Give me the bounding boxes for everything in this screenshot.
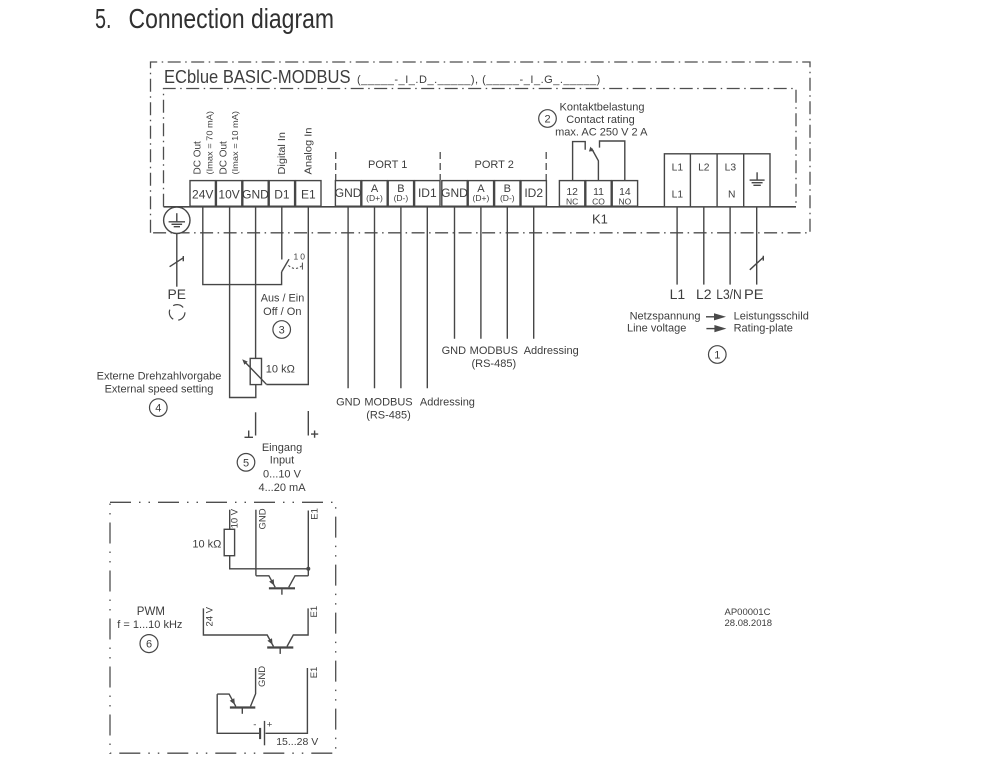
svg-text:10V: 10V — [218, 187, 239, 201]
svg-text:GND: GND — [257, 666, 268, 687]
svg-text:Netzspannung: Netzspannung — [630, 310, 701, 322]
svg-text:(D+): (D+) — [473, 193, 490, 203]
svg-text:10 kΩ: 10 kΩ — [266, 364, 295, 376]
svg-text:(_____-_I_.D_._____), (_____-_: (_____-_I_.D_._____), (_____-_I_.G_.____… — [357, 74, 601, 86]
svg-text:GND: GND — [442, 345, 467, 357]
svg-text:Input: Input — [270, 455, 294, 467]
svg-text:Addressing: Addressing — [420, 397, 475, 409]
svg-text:-: - — [253, 720, 256, 731]
svg-text:ID2: ID2 — [524, 186, 543, 200]
svg-text:L3/N: L3/N — [716, 286, 742, 302]
svg-text:GND: GND — [242, 187, 269, 201]
svg-text:Eingang: Eingang — [262, 442, 302, 454]
svg-text:L1: L1 — [672, 162, 684, 173]
svg-text:4: 4 — [155, 403, 161, 415]
svg-text:Leistungsschild: Leistungsschild — [734, 310, 809, 322]
svg-text:(D+): (D+) — [366, 193, 383, 203]
svg-text:PORT 1: PORT 1 — [368, 159, 407, 171]
svg-text:2: 2 — [544, 114, 550, 126]
svg-text:L1: L1 — [672, 190, 684, 201]
svg-text:Connection diagram: Connection diagram — [129, 3, 335, 34]
svg-text:AP00001C: AP00001C — [725, 607, 771, 618]
svg-text:MODBUS: MODBUS — [364, 397, 412, 409]
svg-text:4...20 mA: 4...20 mA — [258, 482, 306, 494]
svg-text:5: 5 — [243, 457, 249, 469]
svg-text:L3: L3 — [725, 162, 737, 173]
svg-text:PWM: PWM — [137, 606, 165, 618]
svg-text:K1: K1 — [592, 212, 608, 227]
svg-text:DC Out: DC Out — [193, 141, 204, 175]
svg-text:Off / On: Off / On — [263, 306, 301, 318]
svg-text:PE: PE — [744, 286, 764, 302]
svg-text:PE: PE — [168, 286, 187, 302]
svg-text:ID1: ID1 — [418, 186, 437, 200]
svg-text:GND: GND — [441, 186, 468, 200]
svg-text:Line voltage: Line voltage — [627, 323, 686, 335]
svg-text:Digital In: Digital In — [277, 132, 288, 175]
svg-text:1: 1 — [294, 252, 299, 262]
svg-text:GND: GND — [335, 186, 362, 200]
svg-text:External speed setting: External speed setting — [105, 383, 214, 395]
svg-text:GND: GND — [257, 508, 268, 529]
svg-text:Addressing: Addressing — [524, 345, 579, 357]
svg-text:0...10 V: 0...10 V — [263, 468, 302, 480]
svg-text:ECblue BASIC-MODBUS: ECblue BASIC-MODBUS — [164, 66, 351, 87]
svg-text:1: 1 — [714, 350, 720, 362]
svg-text:28.08.2018: 28.08.2018 — [725, 618, 773, 629]
svg-text:5.: 5. — [95, 3, 112, 34]
svg-text:E1: E1 — [309, 606, 320, 618]
svg-text:CO: CO — [592, 196, 605, 206]
svg-text:DC Out: DC Out — [218, 141, 229, 175]
svg-text:Contact rating: Contact rating — [566, 114, 634, 126]
svg-text:(RS-485): (RS-485) — [471, 358, 516, 370]
svg-text:L2: L2 — [698, 162, 710, 173]
svg-text:(D-): (D-) — [394, 193, 409, 203]
svg-text:24 V: 24 V — [205, 606, 216, 626]
svg-text:GND: GND — [336, 397, 361, 409]
svg-text:N: N — [728, 190, 735, 201]
svg-text:E1: E1 — [309, 508, 320, 520]
svg-text:Kontaktbelastung: Kontaktbelastung — [559, 102, 644, 114]
svg-text:(Imax = 10 mA): (Imax = 10 mA) — [230, 111, 240, 175]
svg-text:NO: NO — [619, 196, 632, 206]
svg-text:15...28 V: 15...28 V — [276, 736, 318, 748]
svg-text:max. AC 250 V 2 A: max. AC 250 V 2 A — [555, 127, 648, 139]
svg-text:MODBUS: MODBUS — [470, 345, 518, 357]
svg-text:L2: L2 — [696, 286, 712, 302]
svg-text:NC: NC — [566, 196, 578, 206]
svg-text:3: 3 — [279, 325, 285, 337]
svg-text:Aus / Ein: Aus / Ein — [261, 293, 305, 305]
svg-text:10 kΩ: 10 kΩ — [192, 539, 221, 551]
svg-text:6: 6 — [146, 639, 152, 651]
svg-text:(D-): (D-) — [500, 193, 515, 203]
svg-text:Analog In: Analog In — [304, 128, 315, 175]
svg-text:+: + — [267, 720, 273, 731]
svg-text:E1: E1 — [309, 667, 320, 679]
svg-text:(RS-485): (RS-485) — [366, 410, 411, 422]
svg-text:Externe Drehzahlvorgabe: Externe Drehzahlvorgabe — [97, 371, 222, 383]
svg-text:PORT 2: PORT 2 — [475, 159, 514, 171]
svg-text:10 V: 10 V — [230, 508, 241, 528]
svg-text:0: 0 — [300, 252, 305, 262]
svg-text:E1: E1 — [301, 187, 316, 201]
svg-text:D1: D1 — [274, 187, 290, 201]
svg-text:Rating-plate: Rating-plate — [734, 323, 793, 335]
svg-text:24V: 24V — [192, 187, 213, 201]
svg-text:L1: L1 — [670, 286, 686, 302]
svg-text:f = 1...10 kHz: f = 1...10 kHz — [117, 619, 182, 631]
svg-text:(Imax = 70 mA): (Imax = 70 mA) — [205, 111, 215, 175]
